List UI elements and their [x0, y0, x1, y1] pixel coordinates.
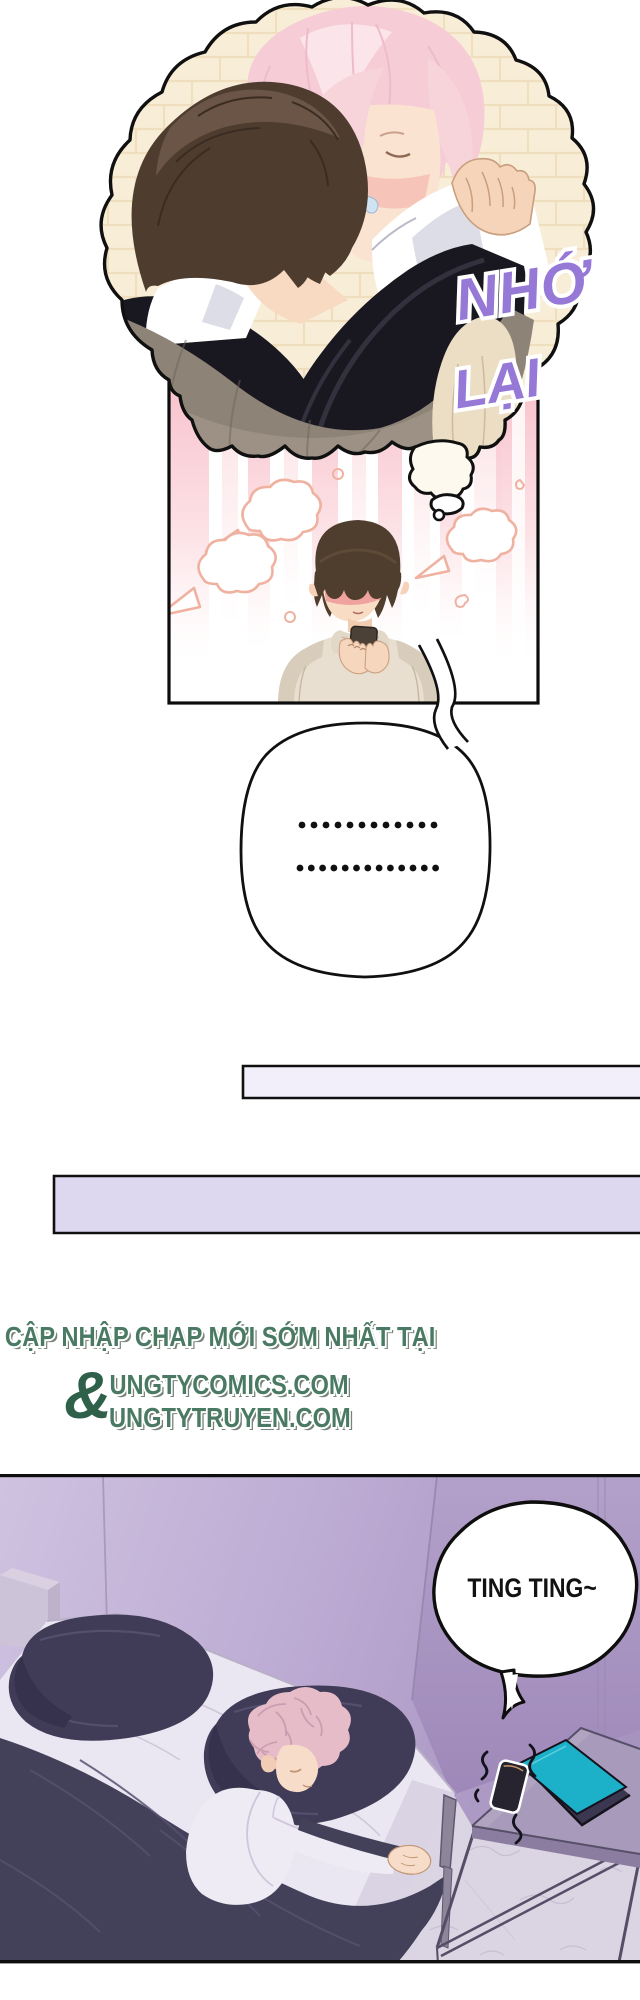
svg-text:UNGTYCOMICS.COM: UNGTYCOMICS.COM: [109, 1370, 348, 1400]
svg-text:UNGTYTRUYEN.COM: UNGTYTRUYEN.COM: [109, 1403, 351, 1433]
svg-text:CẬP NHẬP CHAP MỚI SỚM NHẤT TẠI: CẬP NHẬP CHAP MỚI SỚM NHẤT TẠI: [5, 1320, 435, 1352]
svg-text:&: &: [64, 1358, 112, 1432]
svg-text:TING TING~: TING TING~: [467, 1573, 596, 1603]
